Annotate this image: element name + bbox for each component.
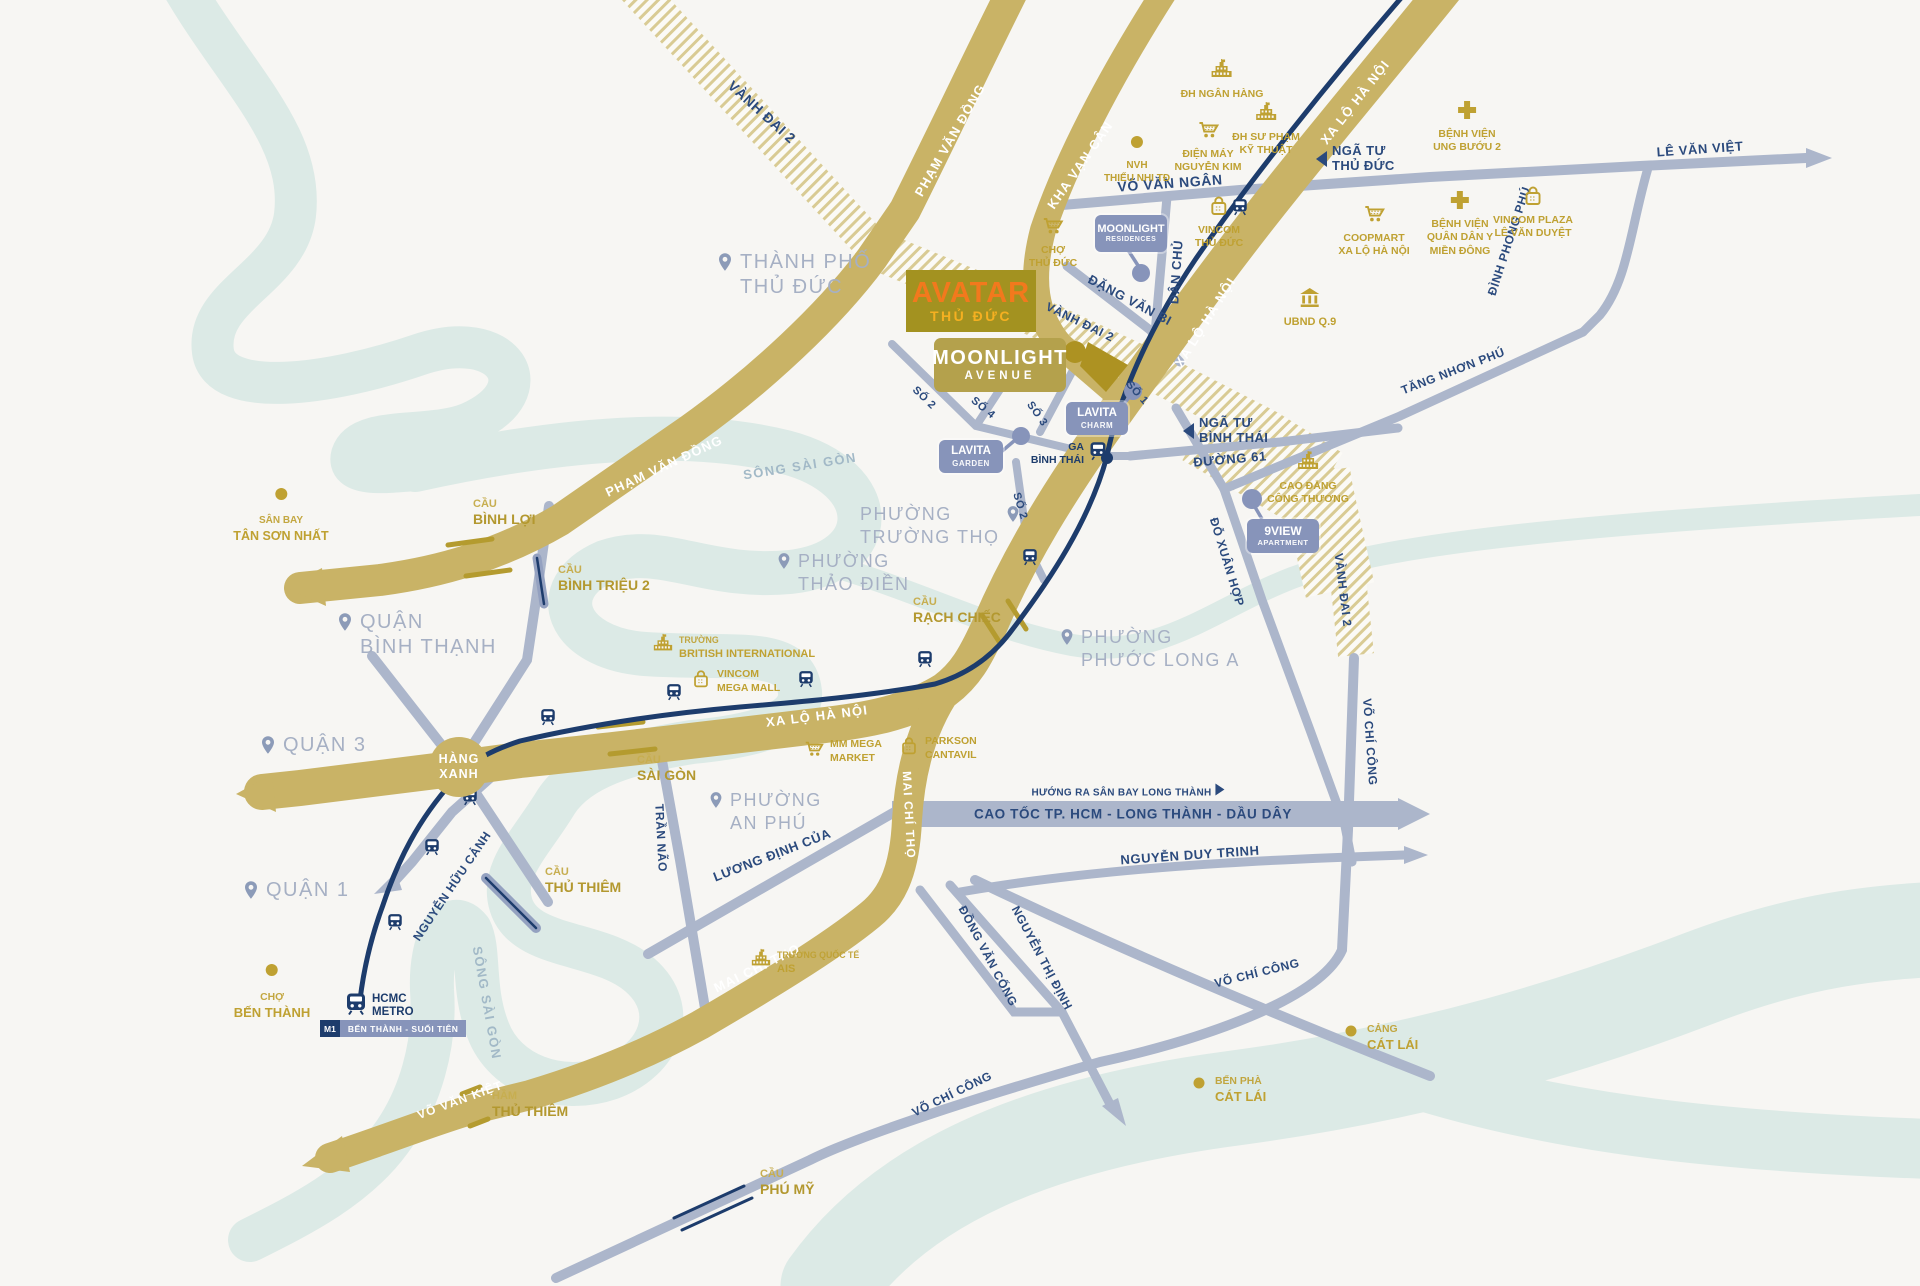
road-xa-lo-ha-noi (262, 0, 1452, 792)
arrow-nguyen-duy-trinh (1404, 846, 1428, 864)
ga-binh-thai-station-label: GA BÌNH THÁI (1008, 441, 1084, 466)
hcmc-metro-line1: HCMC (372, 993, 414, 1005)
avatar-badge-subtitle: THỦ ĐỨC (930, 309, 1012, 324)
arrow-vo-van-kiet-west (302, 1136, 350, 1172)
arrow-expressway (1398, 798, 1430, 830)
hcmc-metro-terminal: HCMC METRO (344, 992, 414, 1019)
ga-binh-thai-line1: GA (1068, 441, 1084, 453)
moonlight-badge-subtitle: AVENUE (964, 370, 1035, 384)
train-icon (344, 992, 368, 1019)
ga-binh-thai-line2: BÌNH THÁI (1031, 454, 1084, 466)
road-nguyen-thi-dinh (950, 885, 1112, 1108)
hcmc-metro-line2: METRO (372, 1006, 414, 1018)
location-map: VÀNH ĐAI 2PHẠM VĂN ĐỒNGKHA VẠN CÂNXA LỘ … (0, 0, 1920, 1286)
road-nguyen-duy-trinh (960, 855, 1404, 892)
river-cat-lai-fork (1395, 1072, 1920, 1150)
m1-badge: M1 (320, 1020, 340, 1037)
avatar-thu-duc-badge: AVATAR THỦ ĐỨC (906, 270, 1036, 332)
avatar-badge-title: AVATAR (912, 278, 1030, 308)
road-vo-chi-cong-ferry (975, 880, 1430, 1076)
hang-xanh-line2: XANH (439, 767, 478, 782)
moonlight-badge-title: MOONLIGHT (932, 346, 1068, 370)
road-tang-nhon-phu (1224, 332, 1583, 489)
road-dinh-phong-phu (1583, 168, 1648, 332)
metro-line-m1-bar: M1 BẾN THÀNH - SUỐI TIÊN (320, 1020, 466, 1037)
gold-arrows (236, 568, 350, 1172)
pin-9view (1255, 507, 1262, 519)
arrow-le-van-viet (1806, 148, 1832, 168)
river-saigon-main (250, 439, 860, 1240)
moonlight-avenue-badge: MOONLIGHT AVENUE (934, 338, 1066, 392)
hang-xanh-line1: HÀNG (439, 752, 480, 767)
hang-xanh-roundabout: HÀNG XANH (429, 737, 489, 797)
pin-moonlight-residences (1128, 250, 1139, 267)
river-top-left (168, 0, 509, 472)
map-graphics (0, 0, 1920, 1286)
train-icon (1088, 441, 1108, 466)
m1-line-name: BẾN THÀNH - SUỐI TIÊN (340, 1020, 467, 1037)
